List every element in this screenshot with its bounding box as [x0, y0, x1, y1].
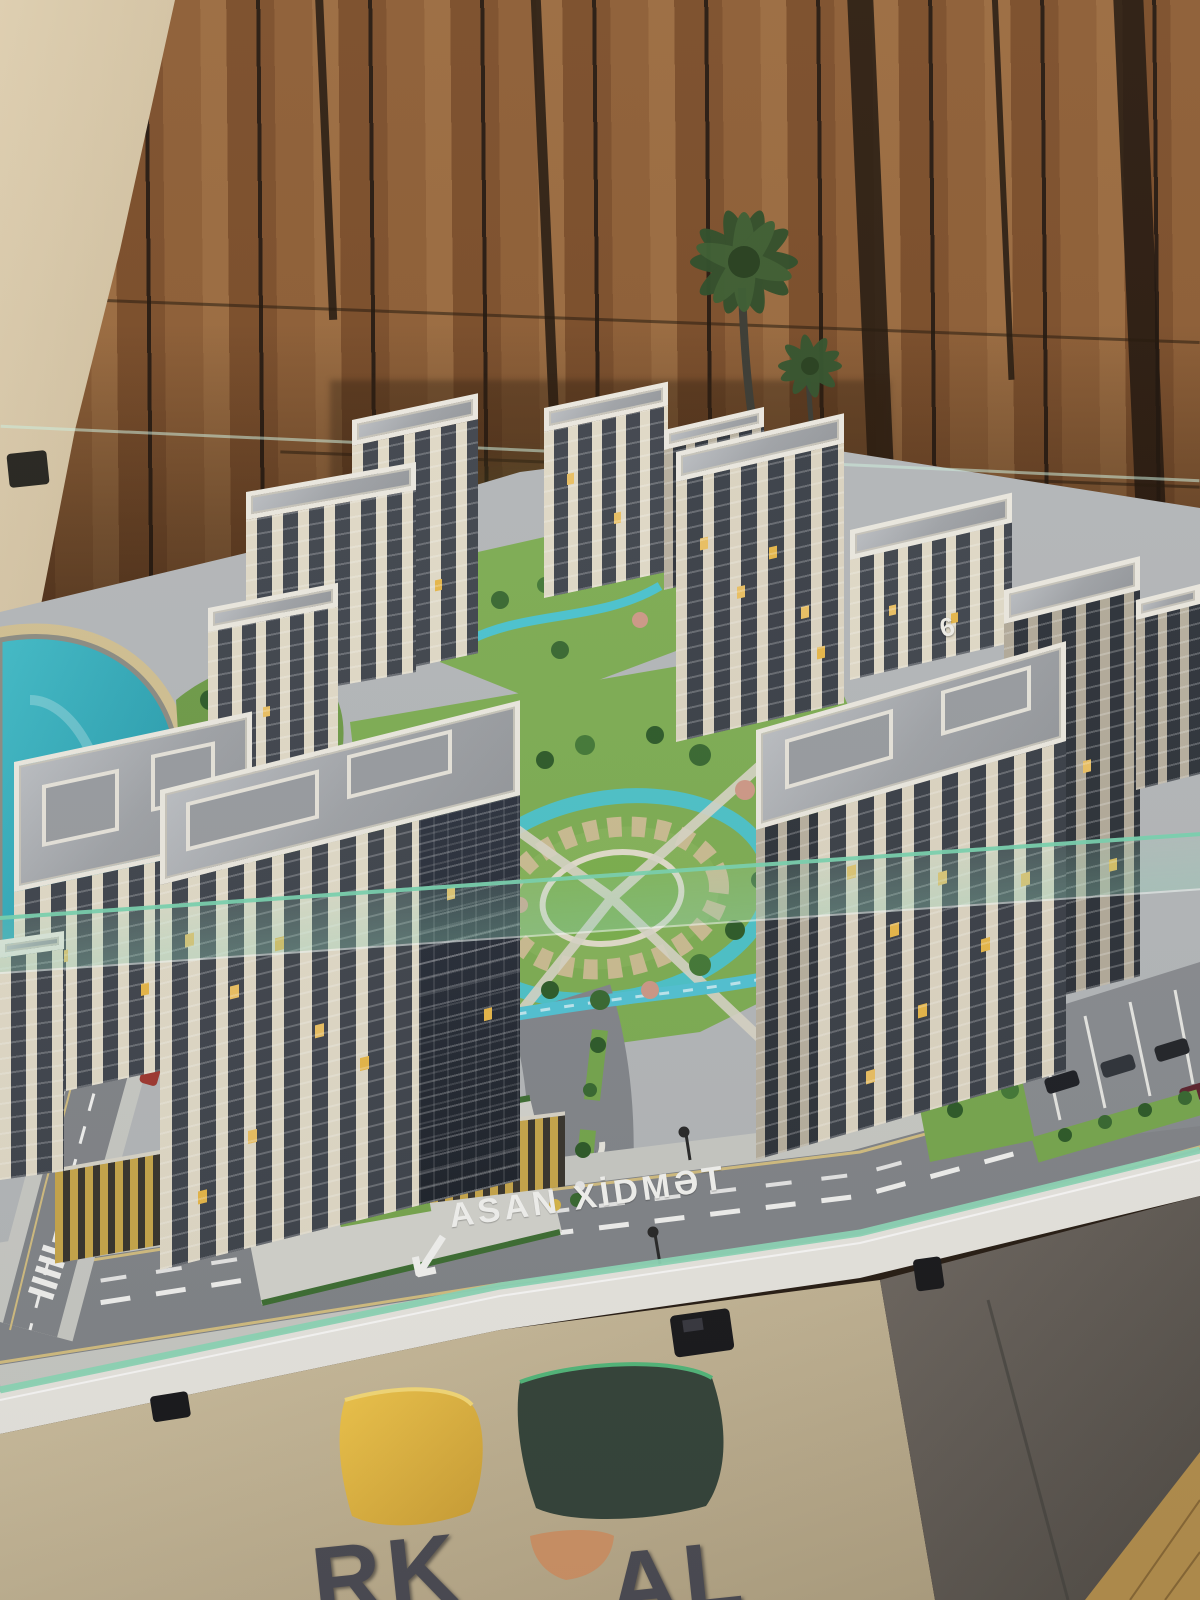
logo-leaf-green — [518, 1364, 724, 1519]
logo-leaf-yellow — [340, 1389, 483, 1525]
model-showroom-photo: 6 ASAN XİDMƏT ↙ — [0, 0, 1200, 1600]
logo-letters-left: RK — [307, 1512, 468, 1600]
model-base-front — [0, 0, 1200, 1600]
logo-letters-right: AL — [603, 1519, 754, 1600]
